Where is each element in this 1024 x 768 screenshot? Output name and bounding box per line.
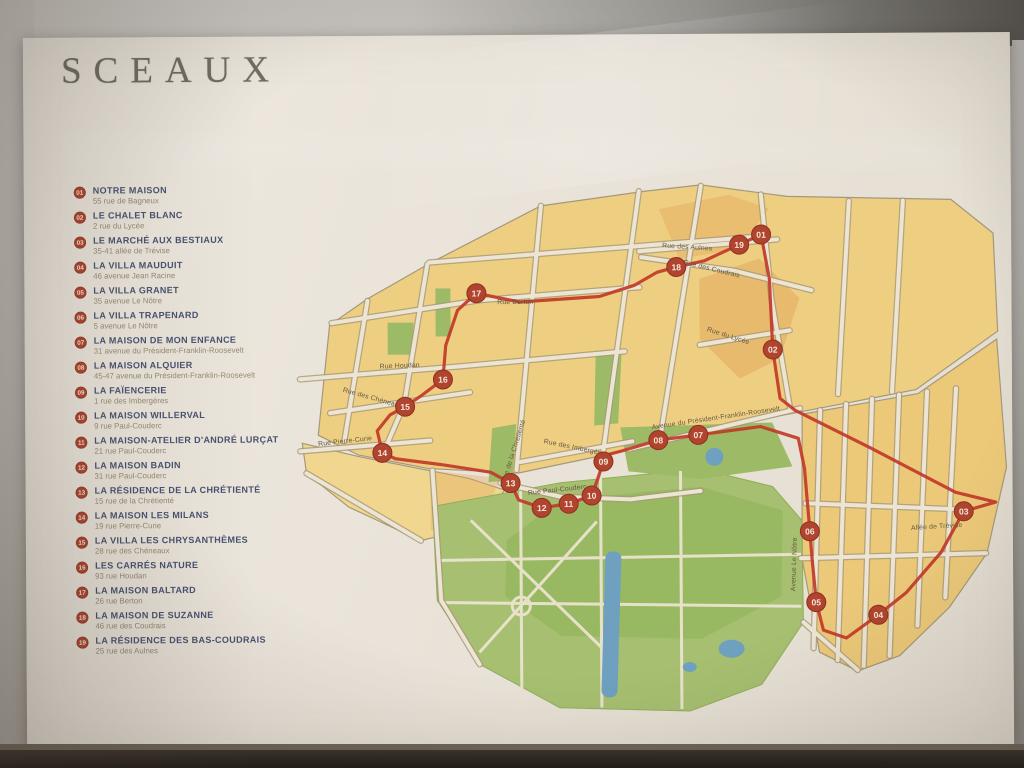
legend-site-name: NOTRE MAISON [93, 185, 167, 196]
svg-text:12: 12 [537, 503, 547, 513]
svg-text:08: 08 [653, 435, 663, 445]
legend-site-address: 26 rue Berton [95, 595, 196, 605]
map-marker-12: 12 [532, 498, 551, 517]
legend-number-badge: 11 [75, 437, 87, 449]
legend-site-name: LE CHALET BLANC [93, 210, 183, 221]
legend-site-address: 45-47 avenue du Président-Franklin-Roose… [94, 370, 255, 380]
legend-number-badge: 03 [74, 237, 86, 249]
map-marker-07: 07 [689, 425, 708, 444]
legend-site-name: LA MAISON WILLERVAL [94, 410, 205, 421]
legend-site-name: LA FAÏENCERIE [94, 385, 168, 396]
map-marker-13: 13 [501, 473, 520, 492]
svg-text:14: 14 [378, 448, 388, 458]
street-label: Rue Berton [497, 299, 533, 306]
map-marker-19: 19 [730, 235, 749, 254]
map-marker-04: 04 [869, 605, 888, 624]
shadow-below-frame [0, 750, 1024, 768]
legend-number-badge: 19 [76, 637, 88, 649]
legend-site-name: LA MAISON DE SUZANNE [95, 610, 213, 621]
legend-site-address: 28 rue des Chéneaux [95, 545, 248, 555]
svg-text:11: 11 [564, 499, 573, 509]
legend-site-address: 31 rue Paul-Couderc [94, 471, 180, 481]
legend-site-address: 25 rue des Aulnes [96, 645, 266, 656]
svg-text:01: 01 [756, 230, 766, 240]
legend-site-address: 46 avenue Jean Racine [93, 271, 182, 281]
map-marker-05: 05 [807, 593, 826, 612]
svg-text:03: 03 [959, 506, 969, 516]
svg-text:05: 05 [811, 597, 821, 607]
legend-number-badge: 05 [74, 287, 86, 299]
svg-text:04: 04 [874, 610, 884, 620]
legend-number-badge: 12 [75, 462, 87, 474]
legend-number-badge: 18 [76, 612, 88, 624]
map-marker-16: 16 [433, 370, 452, 389]
legend-site-address: 31 avenue du Président-Franklin-Roosevel… [94, 345, 244, 355]
legend-number-badge: 10 [75, 412, 87, 424]
legend-site-name: LA VILLA TRAPENARD [93, 310, 198, 321]
legend-site-address: 46 rue des Coudrais [95, 620, 213, 630]
legend-site-name: LA MAISON LES MILANS [95, 510, 209, 521]
legend-number-badge: 01 [74, 187, 86, 199]
svg-text:10: 10 [587, 491, 597, 501]
legend-site-address: 9 rue Paul-Couderc [94, 420, 205, 430]
svg-text:16: 16 [438, 375, 448, 385]
poster-title: SCEAUX [61, 48, 281, 92]
svg-text:02: 02 [768, 345, 778, 355]
svg-text:06: 06 [805, 526, 815, 536]
map-marker-01: 01 [751, 225, 770, 244]
legend-site-name: LA VILLA GRANET [93, 285, 179, 296]
legend-site-address: 35 avenue Le Nôtre [93, 296, 179, 306]
svg-text:07: 07 [693, 430, 703, 440]
map-marker-15: 15 [396, 397, 415, 416]
legend-site-address: 55 rue de Bagneux [93, 196, 167, 206]
map-marker-10: 10 [582, 486, 601, 505]
legend-site-address: 19 rue Pierre-Curie [95, 520, 209, 530]
framed-map-photo: SCEAUX 01 NOTRE MAISON 55 rue de Bagneux… [0, 0, 1024, 768]
legend-number-badge: 09 [75, 387, 87, 399]
map-marker-11: 11 [559, 494, 578, 513]
map-marker-02: 02 [763, 340, 782, 359]
legend-number-badge: 07 [75, 337, 87, 349]
map-poster: SCEAUX 01 NOTRE MAISON 55 rue de Bagneux… [23, 32, 1014, 751]
legend-site-address: 93 rue Houdan [95, 570, 198, 580]
svg-text:18: 18 [671, 262, 681, 272]
legend-site-address: 5 avenue Le Nôtre [94, 320, 199, 330]
map-marker-18: 18 [667, 257, 686, 276]
svg-text:09: 09 [599, 457, 609, 467]
svg-text:19: 19 [734, 240, 744, 250]
map-marker-09: 09 [594, 452, 613, 471]
legend-number-badge: 17 [76, 587, 88, 599]
legend-site-name: LE MARCHÉ AUX BESTIAUX [93, 235, 223, 246]
legend-site-name: LA VILLA MAUDUIT [93, 260, 182, 271]
legend-number-badge: 02 [74, 212, 86, 224]
legend-site-address: 15 rue de la Chrétienté [95, 495, 261, 506]
legend-number-badge: 06 [75, 312, 87, 324]
legend-number-badge: 13 [76, 487, 88, 499]
legend-number-badge: 14 [76, 512, 88, 524]
sceaux-map: Rue des AulnesRue des CoudraisRue Berton… [249, 172, 1022, 732]
legend-site-name: LA MAISON BALTARD [95, 585, 196, 596]
legend-number-badge: 16 [76, 562, 88, 574]
map-marker-14: 14 [373, 443, 392, 462]
svg-text:15: 15 [400, 402, 410, 412]
legend-site-address: 2 rue du Lycée [93, 221, 183, 231]
legend-site-name: LES CARRÉS NATURE [95, 560, 198, 571]
legend-site-address: 35-41 allée de Trévise [93, 245, 223, 255]
legend-number-badge: 04 [74, 262, 86, 274]
svg-text:17: 17 [472, 288, 482, 298]
legend-site-name: LA MAISON BADIN [94, 460, 180, 471]
map-marker-06: 06 [800, 522, 819, 541]
map-marker-17: 17 [467, 284, 486, 303]
legend-number-badge: 15 [76, 537, 88, 549]
legend-number-badge: 08 [75, 362, 87, 374]
svg-text:13: 13 [506, 478, 516, 488]
map-marker-03: 03 [954, 502, 973, 521]
map-marker-08: 08 [649, 431, 668, 450]
legend-site-address: 1 rue des Imbergères [94, 396, 168, 406]
